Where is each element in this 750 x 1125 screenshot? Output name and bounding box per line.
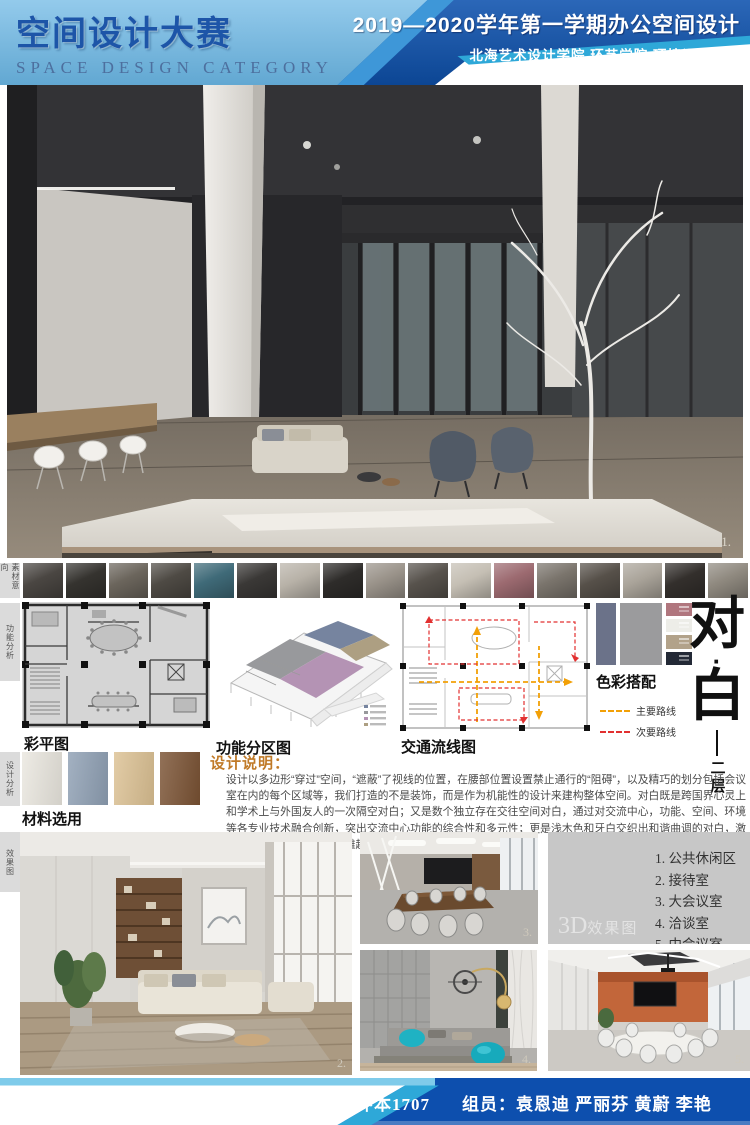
thumbnail-image [109,563,149,598]
thumbnail-image [194,563,234,598]
floor-plan-drawing [22,602,210,728]
thumbnail-image [451,563,491,598]
thumbnail-image [366,563,406,598]
legend-secondary-line [600,731,630,733]
members-label: 组员：袁恩迪 严丽芬 黄蔚 李艳 [462,1090,712,1115]
legend-main-route: 主要路线 [600,703,676,718]
sidebar-label-renderings: 效果图 [0,832,20,892]
thumbnail-image [494,563,534,598]
design-note-heading: 设计说明： [210,752,290,773]
circulation-drawing [399,602,591,732]
room-list-item: 3. 大会议室 [655,891,736,913]
thumbnail-image [23,563,63,598]
palette-swatch-large [620,603,662,665]
render-large-conference: 3. [360,832,538,944]
thumbnail-image [580,563,620,598]
circulation-legend: 主要路线 次要路线 [600,703,676,745]
color-palette [596,603,692,665]
thumbnail-image [66,563,106,598]
legend-secondary-label: 次要路线 [636,724,676,739]
title-divider [716,730,718,756]
material-swatch [68,752,108,805]
axonometric-drawing [216,605,396,733]
palette-caption: 色彩搭配 [596,671,656,692]
class-label: 班级：环本1707 [302,1090,430,1115]
renderings-3d-label: 3D效果图 [558,913,638,940]
sidebar-label-design-analysis: 设计分析 [0,752,20,806]
hero-render: 1. [7,85,743,558]
plan-caption: 彩平图 [24,733,69,754]
header-left-titles: 空间设计大赛 SPACE DESIGN CATEGORY [16,6,333,78]
function-zoning-axon [216,605,396,733]
palette-swatch-large [596,603,616,665]
thumbnail-image [323,563,363,598]
render-public-lounge: 2. [20,832,352,1075]
page-marker-4: 4. [522,1052,531,1067]
thumbnail-image [280,563,320,598]
circulation-caption: 交通流线图 [401,736,476,757]
label-3d-prefix: 3D [558,913,587,939]
sidebar-label-function-analysis: 功能分析 [0,603,20,681]
room-list-item: 4. 洽谈室 [655,913,736,935]
material-swatch [160,752,200,805]
legend-main-line [600,710,630,712]
legend-main-label: 主要路线 [636,703,676,718]
course-title: 2019—2020学年第一学期办公空间设计 [353,9,740,39]
room-list: 1. 公共休闲区 2. 接待室 3. 大会议室 4. 洽谈室 5. 中会议室 [655,848,736,944]
competition-subtitle-en: SPACE DESIGN CATEGORY [16,58,333,78]
room-list-item: 1. 公共休闲区 [655,848,736,870]
material-swatches [22,752,206,805]
thumbnail-image [237,563,277,598]
thumbnail-image [623,563,663,598]
meeting-illustration [548,950,750,1071]
competition-title: 空间设计大赛 [16,6,333,55]
room-list-item: 2. 接待室 [655,870,736,892]
page-marker-2: 2. [337,1056,346,1071]
footer-top-stripe [0,1078,435,1086]
lounge-illustration [360,950,537,1071]
header-right-titles: 2019—2020学年第一学期办公空间设计 北海艺术设计学院 环艺学院 环境设计… [353,9,740,64]
conference-illustration [360,832,538,944]
materials-caption: 材料选用 [22,808,82,829]
sidebar-label-materials-intent: 素材意向 [0,563,20,598]
thumbnail-image [151,563,191,598]
thumbnail-image [408,563,448,598]
hero-scene-illustration [7,85,743,558]
legend-secondary-route: 次要路线 [600,724,676,739]
poster-board: 空间设计大赛 SPACE DESIGN CATEGORY 2019—2020学年… [0,0,750,1125]
project-title-vertical: 对 · 白 二层 [686,598,748,796]
page-marker-3: 3. [523,925,532,940]
page-marker-5: 5. [735,1052,744,1067]
living-room-illustration [20,832,352,1075]
title-char: 对 [689,598,745,652]
label-3d-suffix: 效果图 [587,921,638,937]
header: 空间设计大赛 SPACE DESIGN CATEGORY 2019—2020学年… [0,0,750,85]
render-reception-lounge: 4. [360,950,537,1071]
page-marker-1: 1. [721,534,731,550]
material-swatch [114,752,154,805]
room-list-item: 5. 中会议室 [655,934,736,944]
render-index-panel: 1. 公共休闲区 2. 接待室 3. 大会议室 4. 洽谈室 5. 中会议室 3… [548,832,750,944]
material-swatch [22,752,62,805]
thumbnail-strip [23,563,748,598]
thumbnail-image [537,563,577,598]
footer: 班级：环本1707 组员：袁恩迪 严丽芬 黄蔚 李艳 [0,1078,750,1125]
title-char: 白 [689,670,745,724]
render-medium-meeting: 5. [548,950,750,1071]
colored-floor-plan [22,602,210,728]
school-line: 北海艺术设计学院 环艺学院 环境设计专业 [353,44,740,64]
circulation-diagram [399,602,591,732]
